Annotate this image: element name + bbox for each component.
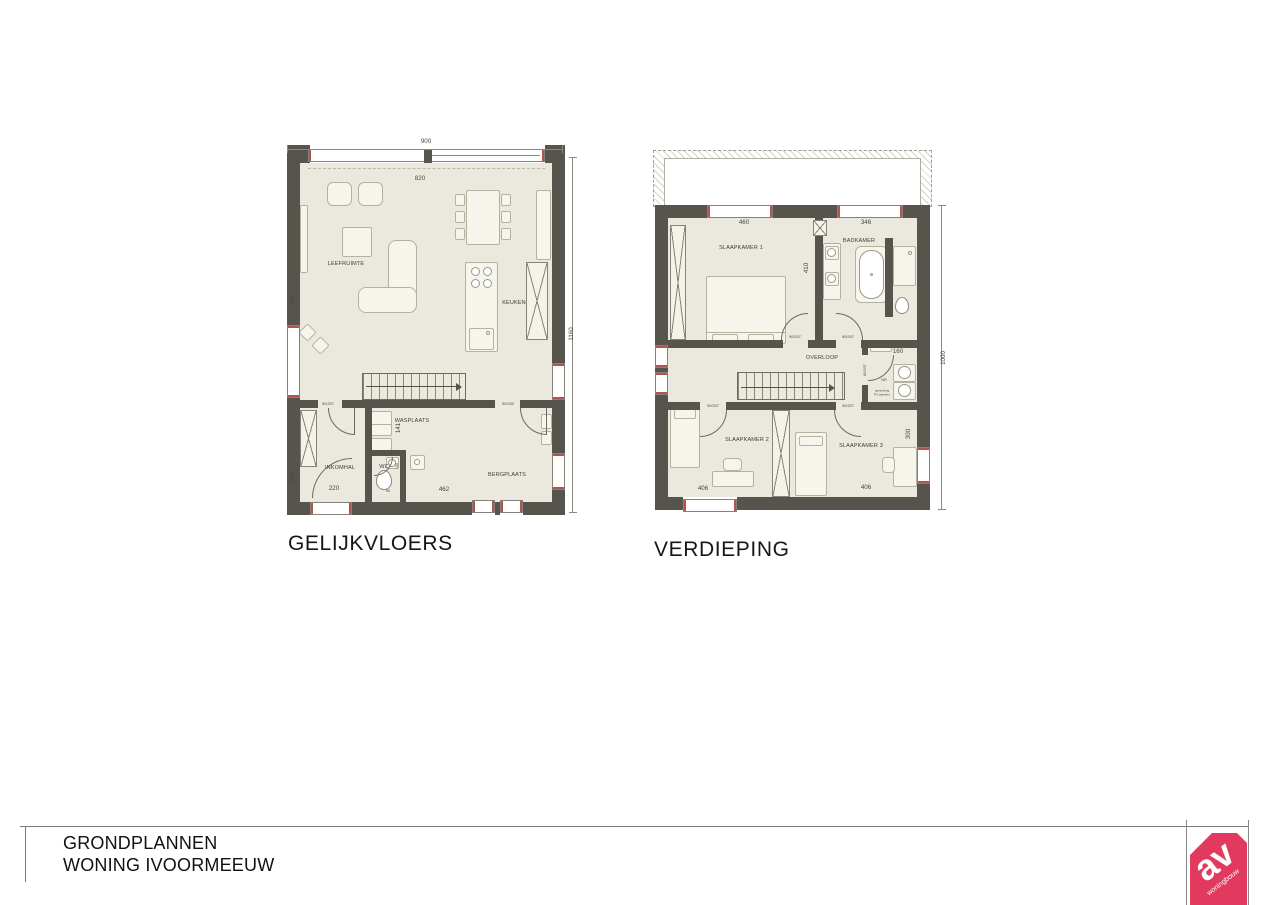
title-block-rule (25, 826, 26, 882)
title-block-rule (20, 826, 1248, 827)
project-title: WONING IVOORMEEUW (63, 855, 274, 876)
drawing-title: GRONDPLANNEN (63, 833, 217, 854)
company-logo: av woningbouw (1190, 833, 1247, 905)
logo-frame-rule (1248, 820, 1249, 905)
title-block: GRONDPLANNEN WONING IVOORMEEUW av woning… (0, 0, 1280, 905)
floor-plan-sheet: 900 820 766 1160 314 220 462 141 100 90 … (0, 0, 1280, 905)
logo-corner-cut (1237, 833, 1247, 843)
logo-frame-rule (1186, 820, 1187, 905)
